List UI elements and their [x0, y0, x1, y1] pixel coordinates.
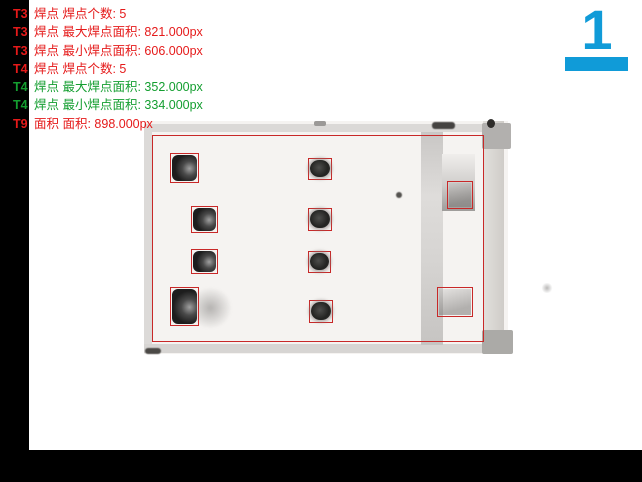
result-line: T4焊点 最小焊点面积: 334.000px: [0, 96, 203, 114]
results-panel: T3焊点 焊点个数: 5 T3焊点 最大焊点面积: 821.000px T3焊点…: [0, 5, 203, 133]
solder-joint-blob: [310, 160, 330, 177]
result-line: T3焊点 最小焊点面积: 606.000px: [0, 42, 203, 60]
result-line: T4焊点 焊点个数: 5: [0, 60, 203, 78]
solder-joint-blob: [172, 155, 197, 181]
tool-tag: T3: [13, 5, 34, 23]
tool-tag: T3: [13, 23, 34, 41]
detection-box: [170, 153, 199, 183]
tool-tag: T4: [13, 60, 34, 78]
detection-box: [437, 287, 473, 317]
solder-joint-blob: [311, 302, 331, 320]
result-text: 焊点 焊点个数: 5: [34, 7, 126, 21]
solder-joint-blob: [449, 183, 471, 207]
detection-box: [170, 287, 199, 326]
solder-joint-blob: [310, 210, 330, 228]
tool-tag: T4: [13, 96, 34, 114]
tool-tag: T9: [13, 115, 34, 133]
detection-box: [447, 181, 473, 209]
result-text: 焊点 最大焊点面积: 821.000px: [34, 25, 203, 39]
solder-joint-blob: [439, 289, 471, 315]
tool-tag: T4: [13, 78, 34, 96]
result-text: 焊点 最大焊点面积: 352.000px: [34, 80, 203, 94]
solder-joint-blob: [172, 289, 197, 324]
detection-box: [309, 300, 333, 323]
solder-joint-blob: [193, 208, 216, 231]
detection-box: [191, 206, 218, 233]
tool-tag: T3: [13, 42, 34, 60]
result-line: T4焊点 最大焊点面积: 352.000px: [0, 78, 203, 96]
result-text: 焊点 最小焊点面积: 334.000px: [34, 98, 203, 112]
solder-joint-blob: [193, 251, 216, 272]
result-text: 焊点 最小焊点面积: 606.000px: [34, 44, 203, 58]
result-text: 面积 面积: 898.000px: [34, 117, 153, 131]
detection-box: [308, 158, 332, 180]
result-line: T9面积 面积: 898.000px: [0, 115, 203, 133]
result-line: T3焊点 最大焊点面积: 821.000px: [0, 23, 203, 41]
detection-box: [308, 208, 332, 231]
detection-box: [308, 251, 331, 273]
result-line: T3焊点 焊点个数: 5: [0, 5, 203, 23]
inspection-viewport: T3焊点 焊点个数: 5 T3焊点 最大焊点面积: 821.000px T3焊点…: [0, 0, 642, 482]
detection-box: [191, 249, 218, 274]
solder-joint-blob: [310, 253, 329, 270]
result-text: 焊点 焊点个数: 5: [34, 62, 126, 76]
